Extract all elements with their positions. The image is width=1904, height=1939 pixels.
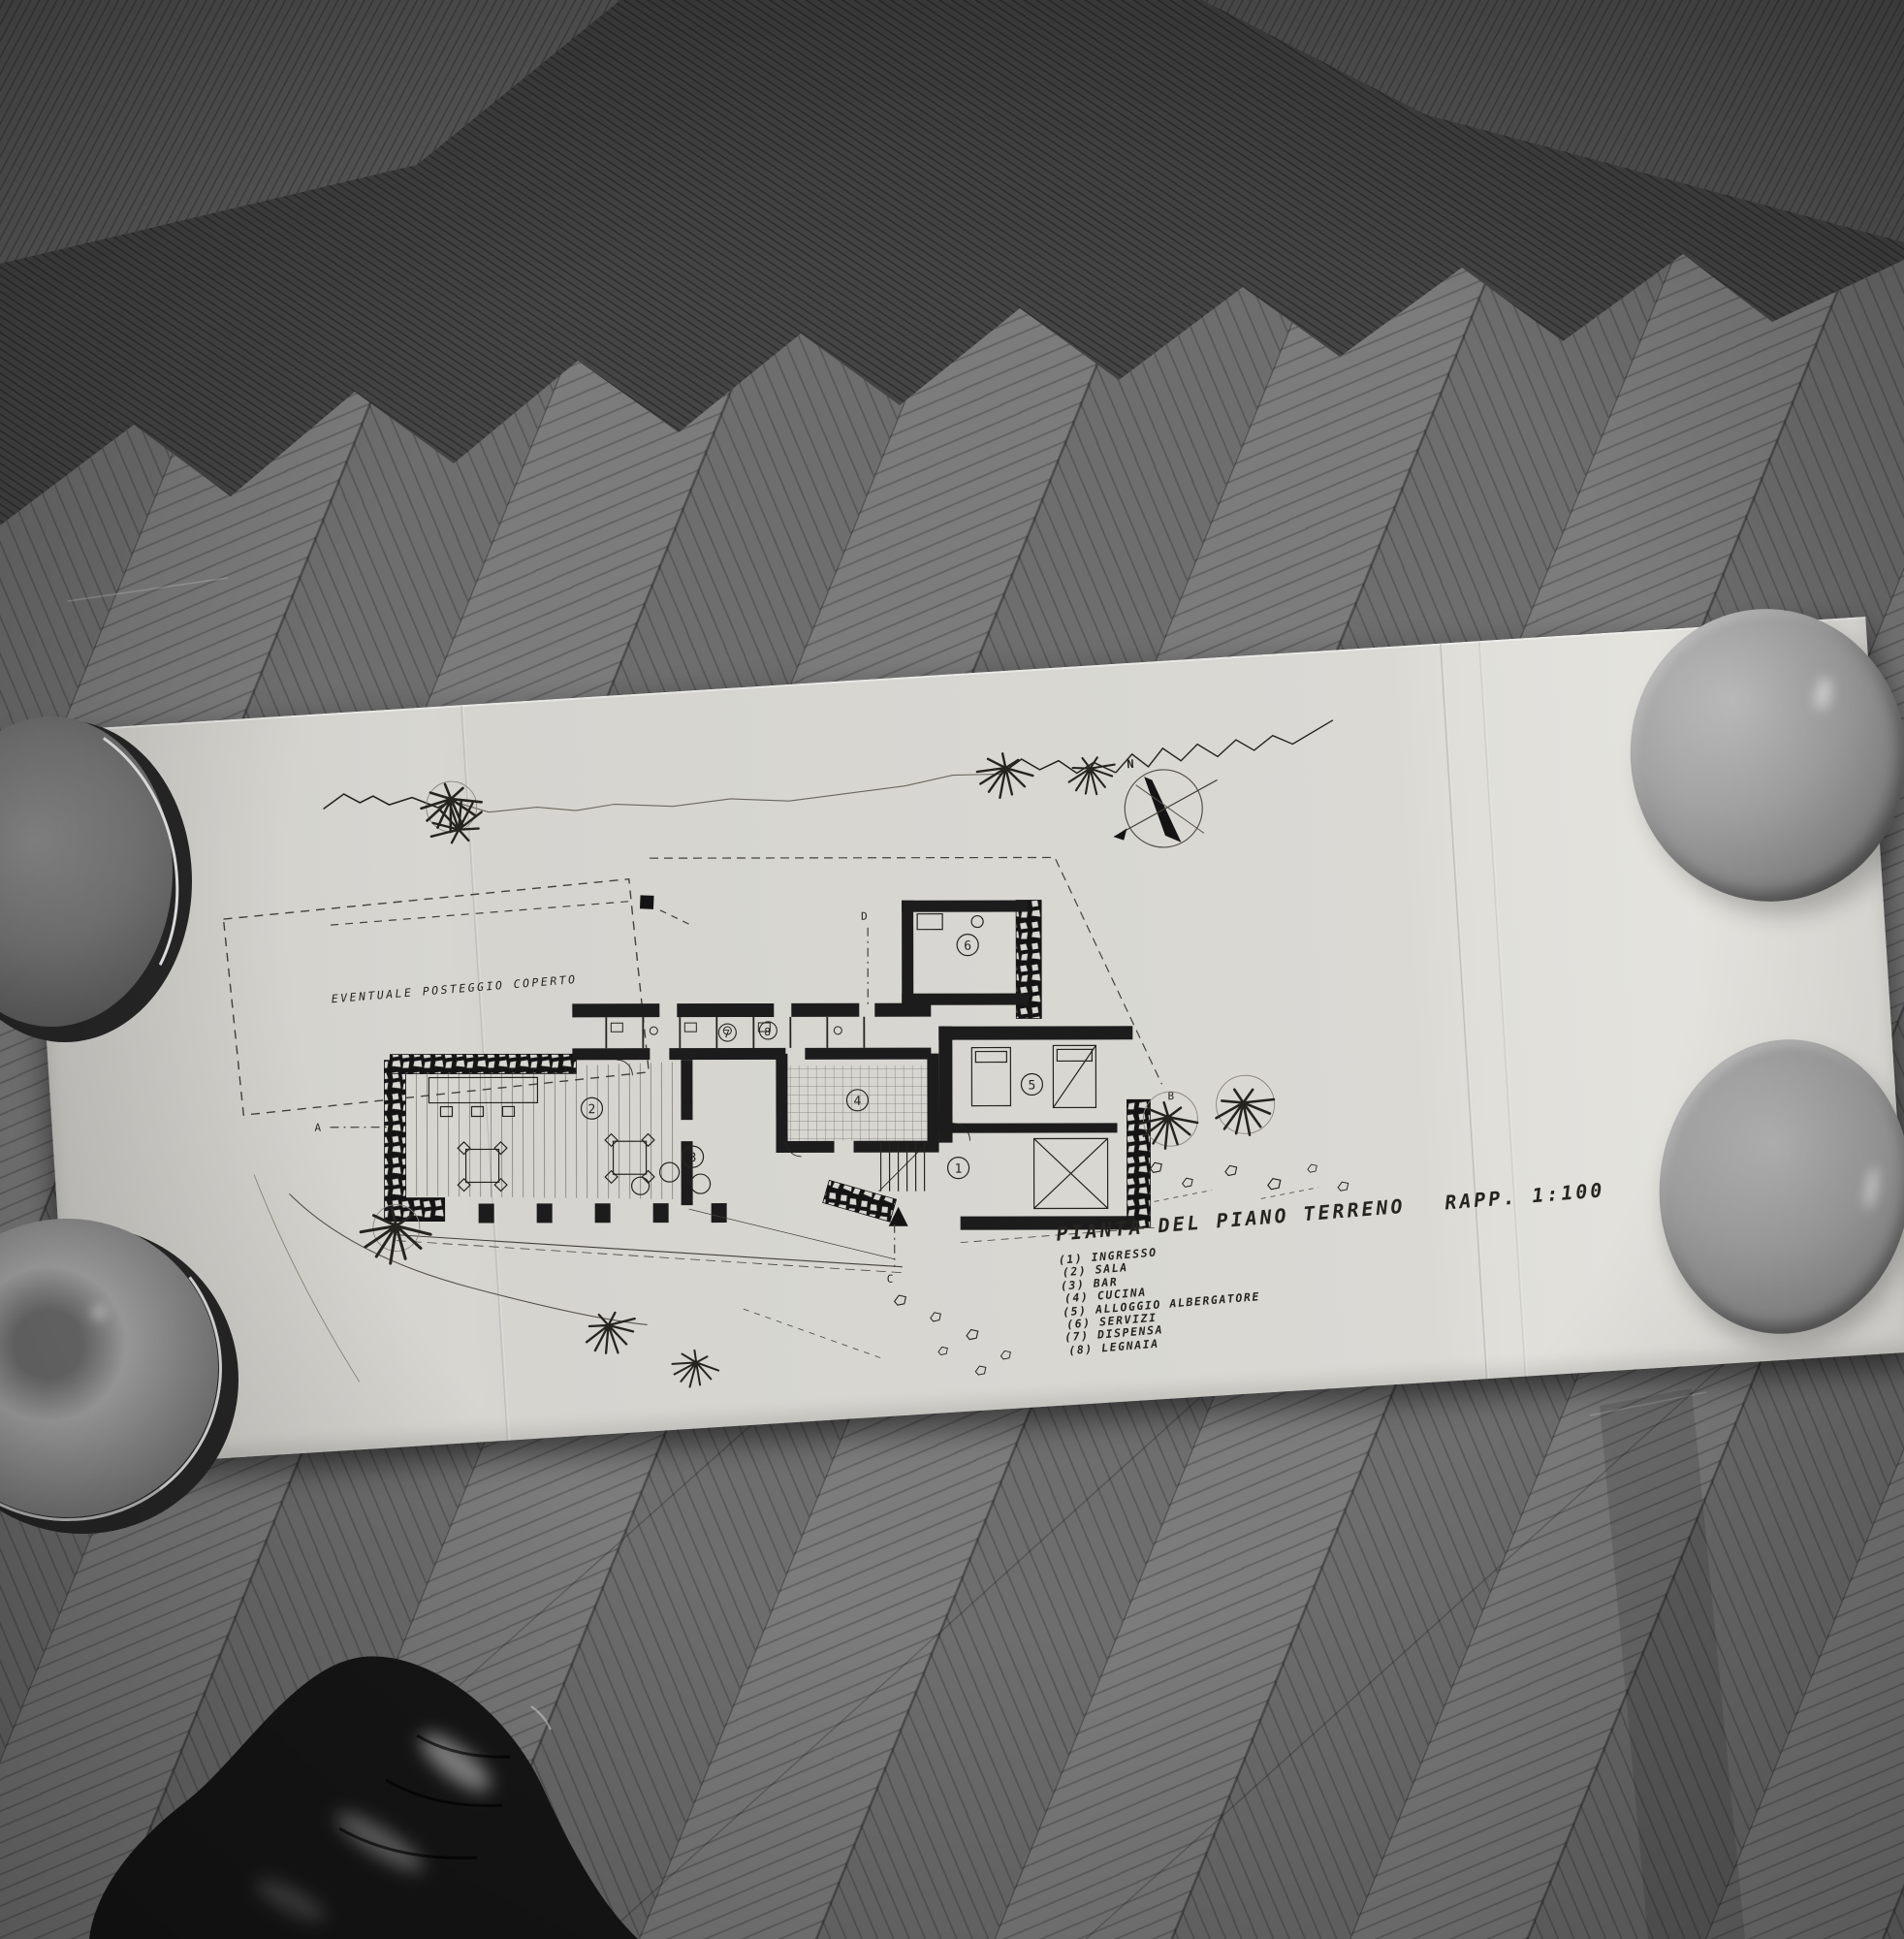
- site-note: EVENTUALE POSTEGGIO COPERTO: [331, 972, 578, 1005]
- drawing-sheet: EVENTUALE POSTEGGIO COPERTO N: [27, 617, 1904, 1468]
- svg-text:8: 8: [764, 1026, 771, 1038]
- svg-text:2: 2: [587, 1102, 595, 1117]
- compass-rose-icon: N: [1109, 751, 1222, 850]
- section-marker-a: A: [314, 1122, 321, 1134]
- tree-sketch-east: [1134, 1069, 1349, 1206]
- svg-text:1: 1: [955, 1162, 963, 1177]
- svg-text:5: 5: [1028, 1078, 1035, 1093]
- building-plan: D A C B 1 2 3 4 5 6 7 8: [314, 857, 1175, 1287]
- section-marker-c: C: [887, 1273, 894, 1286]
- hall-floor: [405, 1062, 681, 1199]
- section-marker-d: D: [861, 910, 868, 923]
- ground-floor-plan-drawing: EVENTUALE POSTEGGIO COPERTO N: [27, 617, 1904, 1468]
- well-marker: [640, 895, 654, 909]
- svg-text:3: 3: [689, 1151, 697, 1165]
- tree-sketch: [419, 740, 1123, 855]
- svg-text:7: 7: [723, 1028, 730, 1040]
- svg-text:4: 4: [853, 1095, 861, 1109]
- photo-of-floor-plan: EVENTUALE POSTEGGIO COPERTO N: [0, 0, 1904, 1939]
- svg-text:6: 6: [964, 939, 971, 954]
- compass-north-label: N: [1127, 757, 1134, 771]
